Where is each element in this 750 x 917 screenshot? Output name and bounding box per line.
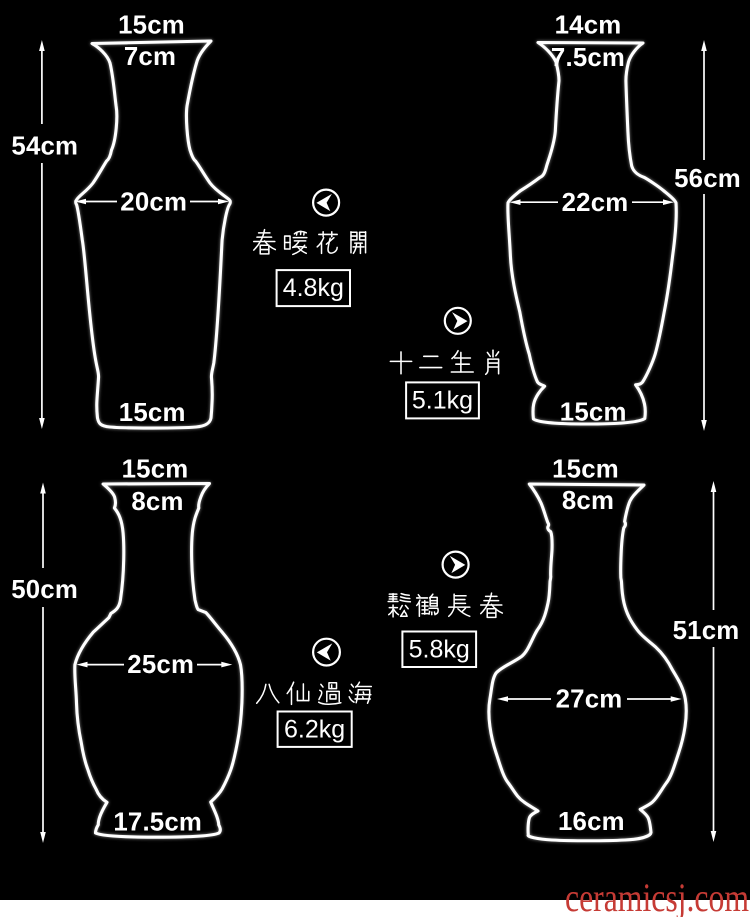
svg-text:15cm: 15cm	[118, 12, 185, 40]
svg-text:4.8kg: 4.8kg	[283, 274, 344, 302]
svg-text:22cm: 22cm	[562, 189, 629, 217]
svg-text:15cm: 15cm	[122, 456, 189, 484]
svg-text:ceramicsj.com: ceramicsj.com	[565, 875, 749, 917]
svg-text:5.1kg: 5.1kg	[412, 386, 473, 414]
svg-text:6.2kg: 6.2kg	[284, 715, 345, 743]
svg-text:56cm: 56cm	[674, 165, 741, 193]
svg-text:14cm: 14cm	[555, 12, 622, 40]
svg-text:15cm: 15cm	[552, 456, 619, 484]
svg-text:20cm: 20cm	[120, 189, 187, 217]
svg-text:27cm: 27cm	[556, 686, 623, 714]
svg-text:51cm: 51cm	[673, 617, 740, 645]
svg-text:25cm: 25cm	[127, 651, 194, 679]
svg-text:54cm: 54cm	[11, 133, 78, 161]
svg-text:7.5cm: 7.5cm	[551, 44, 625, 72]
svg-text:15cm: 15cm	[119, 399, 186, 427]
svg-text:5.8kg: 5.8kg	[409, 636, 470, 664]
svg-text:17.5cm: 17.5cm	[113, 809, 202, 837]
svg-text:15cm: 15cm	[560, 399, 627, 427]
svg-text:50cm: 50cm	[11, 576, 78, 604]
svg-text:7cm: 7cm	[124, 43, 176, 71]
svg-text:8cm: 8cm	[562, 487, 614, 515]
svg-text:8cm: 8cm	[131, 488, 183, 516]
svg-text:16cm: 16cm	[558, 808, 625, 836]
